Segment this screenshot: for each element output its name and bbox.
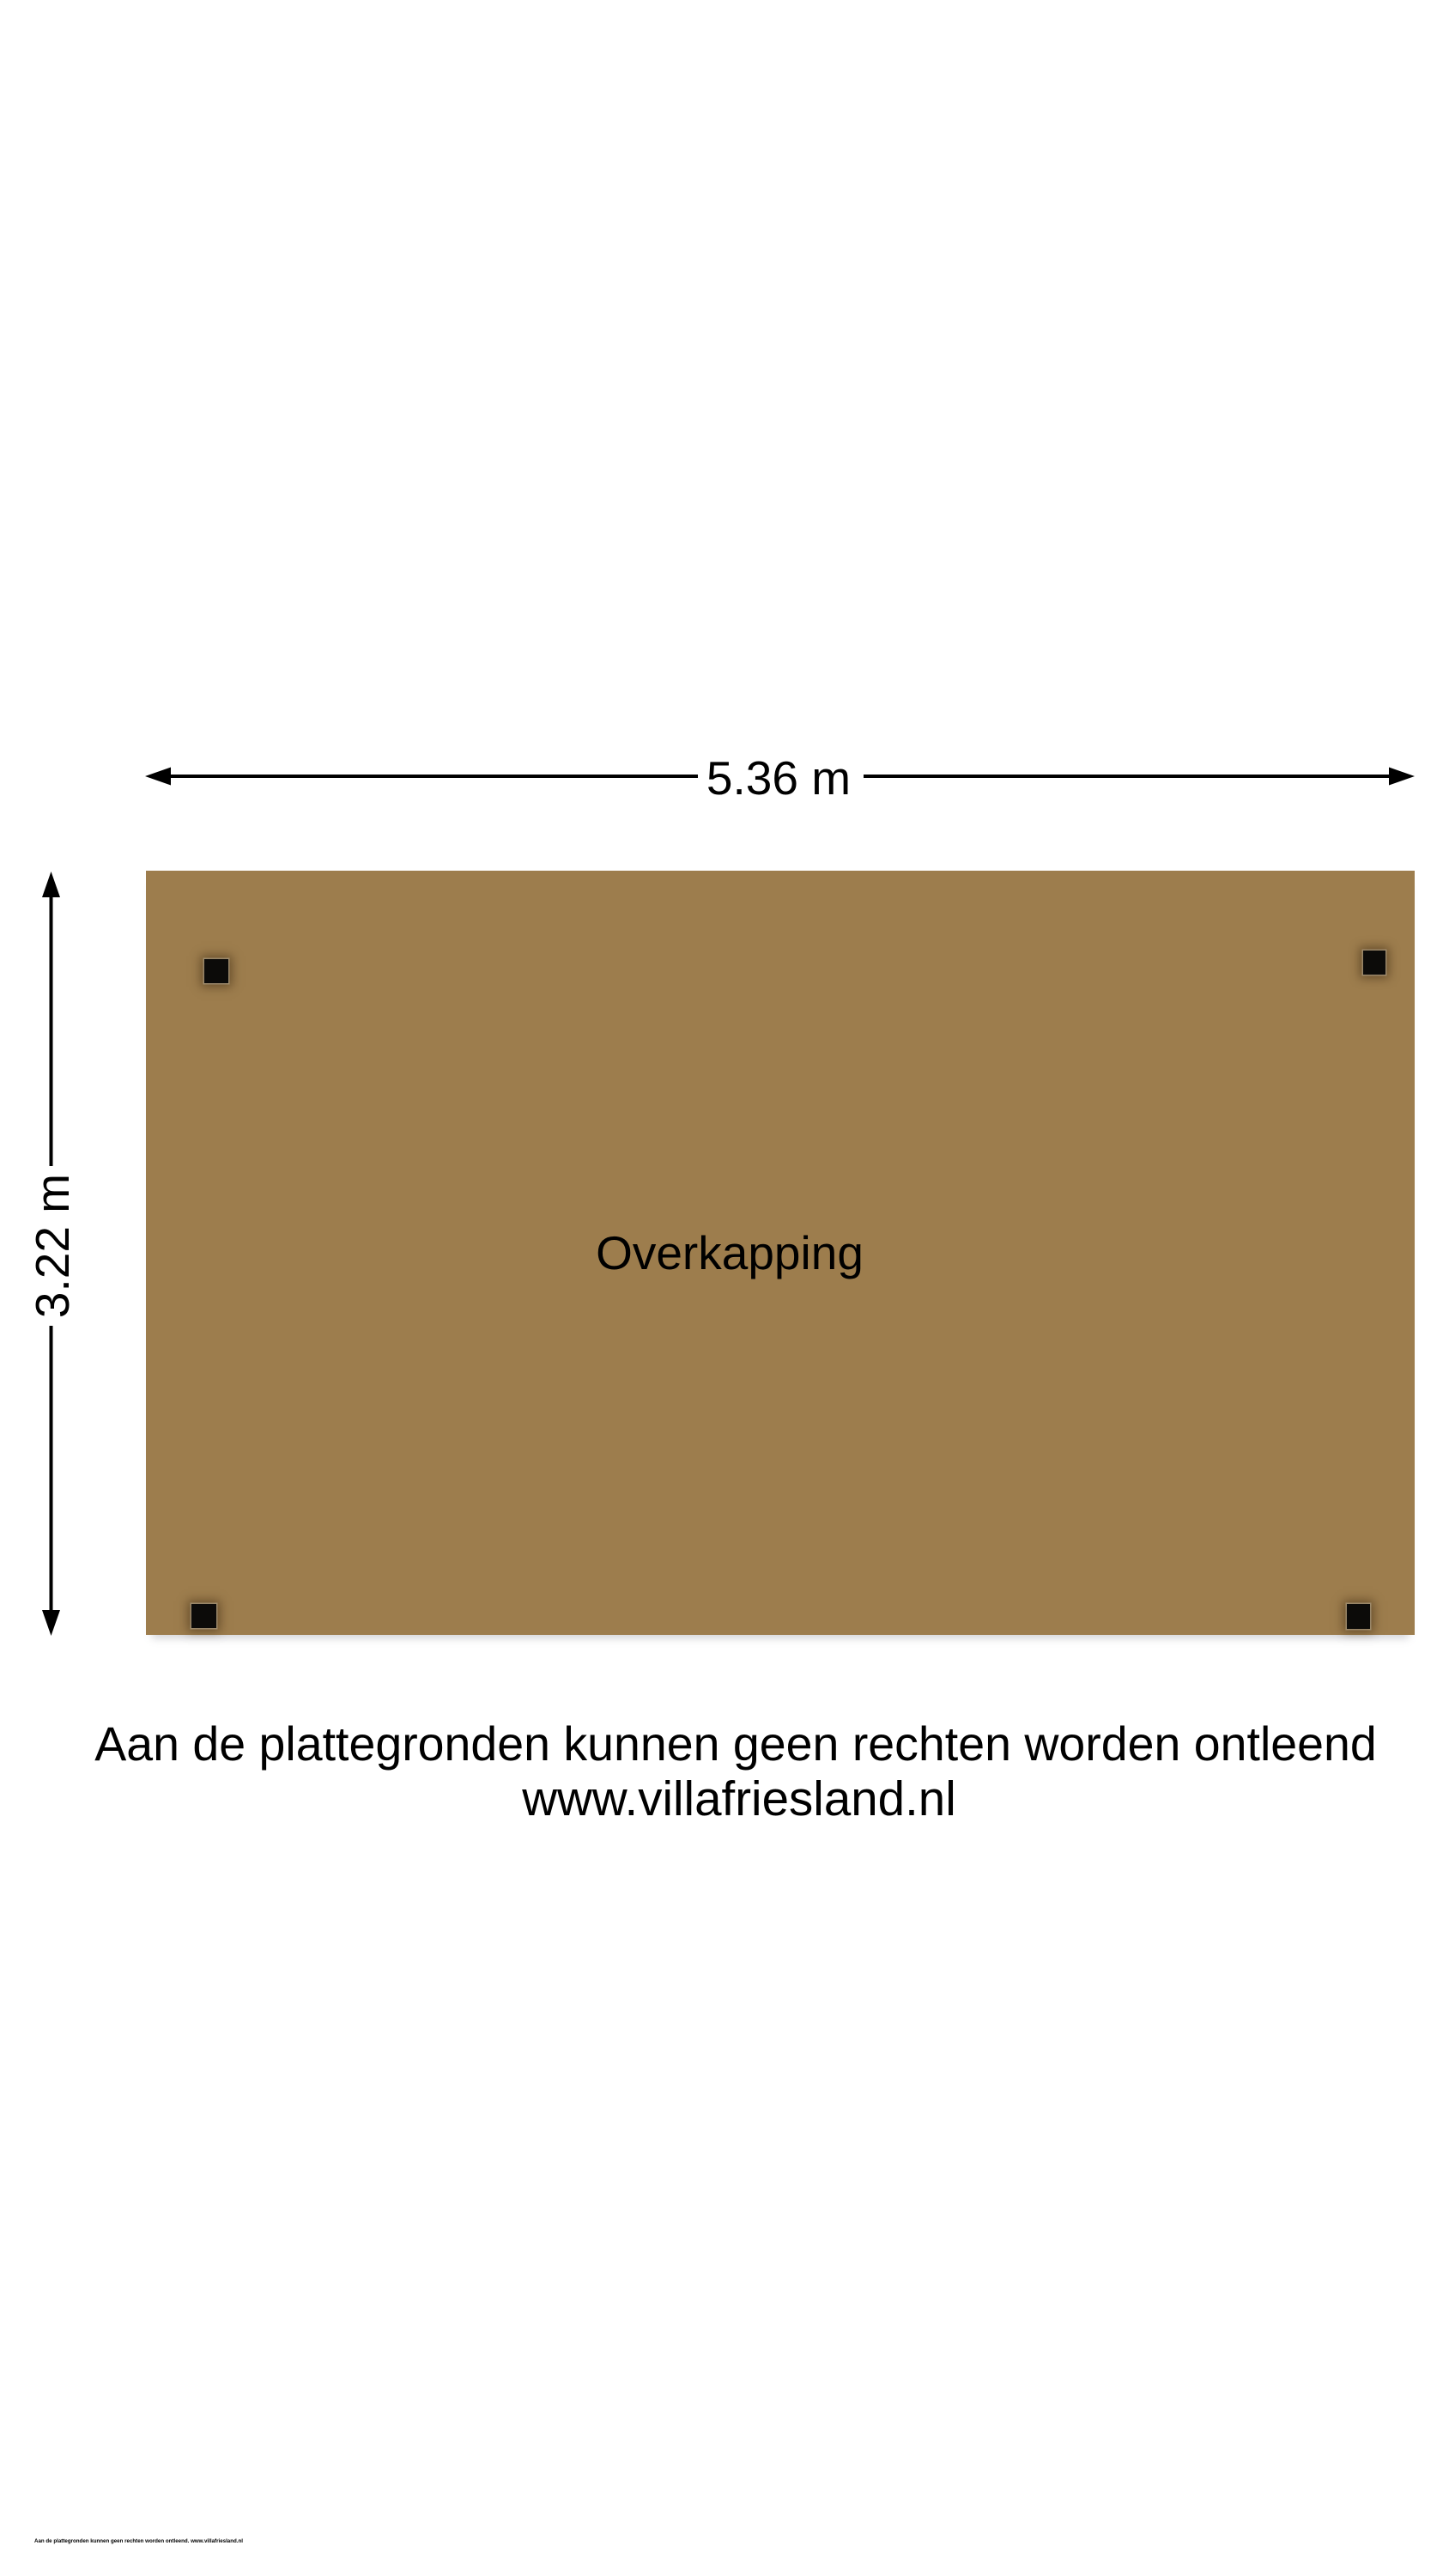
svg-text:www.villafriesland.nl: www.villafriesland.nl <box>521 1771 956 1826</box>
svg-text:Aan de plattegronden kunnen ge: Aan de plattegronden kunnen geen rechten… <box>94 1717 1377 1771</box>
svg-text:3.22 m: 3.22 m <box>26 1174 79 1318</box>
svg-text:5.36 m: 5.36 m <box>706 751 851 805</box>
svg-text:Aan de plattegronden kunnen ge: Aan de plattegronden kunnen geen rechten… <box>34 2538 243 2544</box>
svg-text:Overkapping: Overkapping <box>596 1226 864 1279</box>
